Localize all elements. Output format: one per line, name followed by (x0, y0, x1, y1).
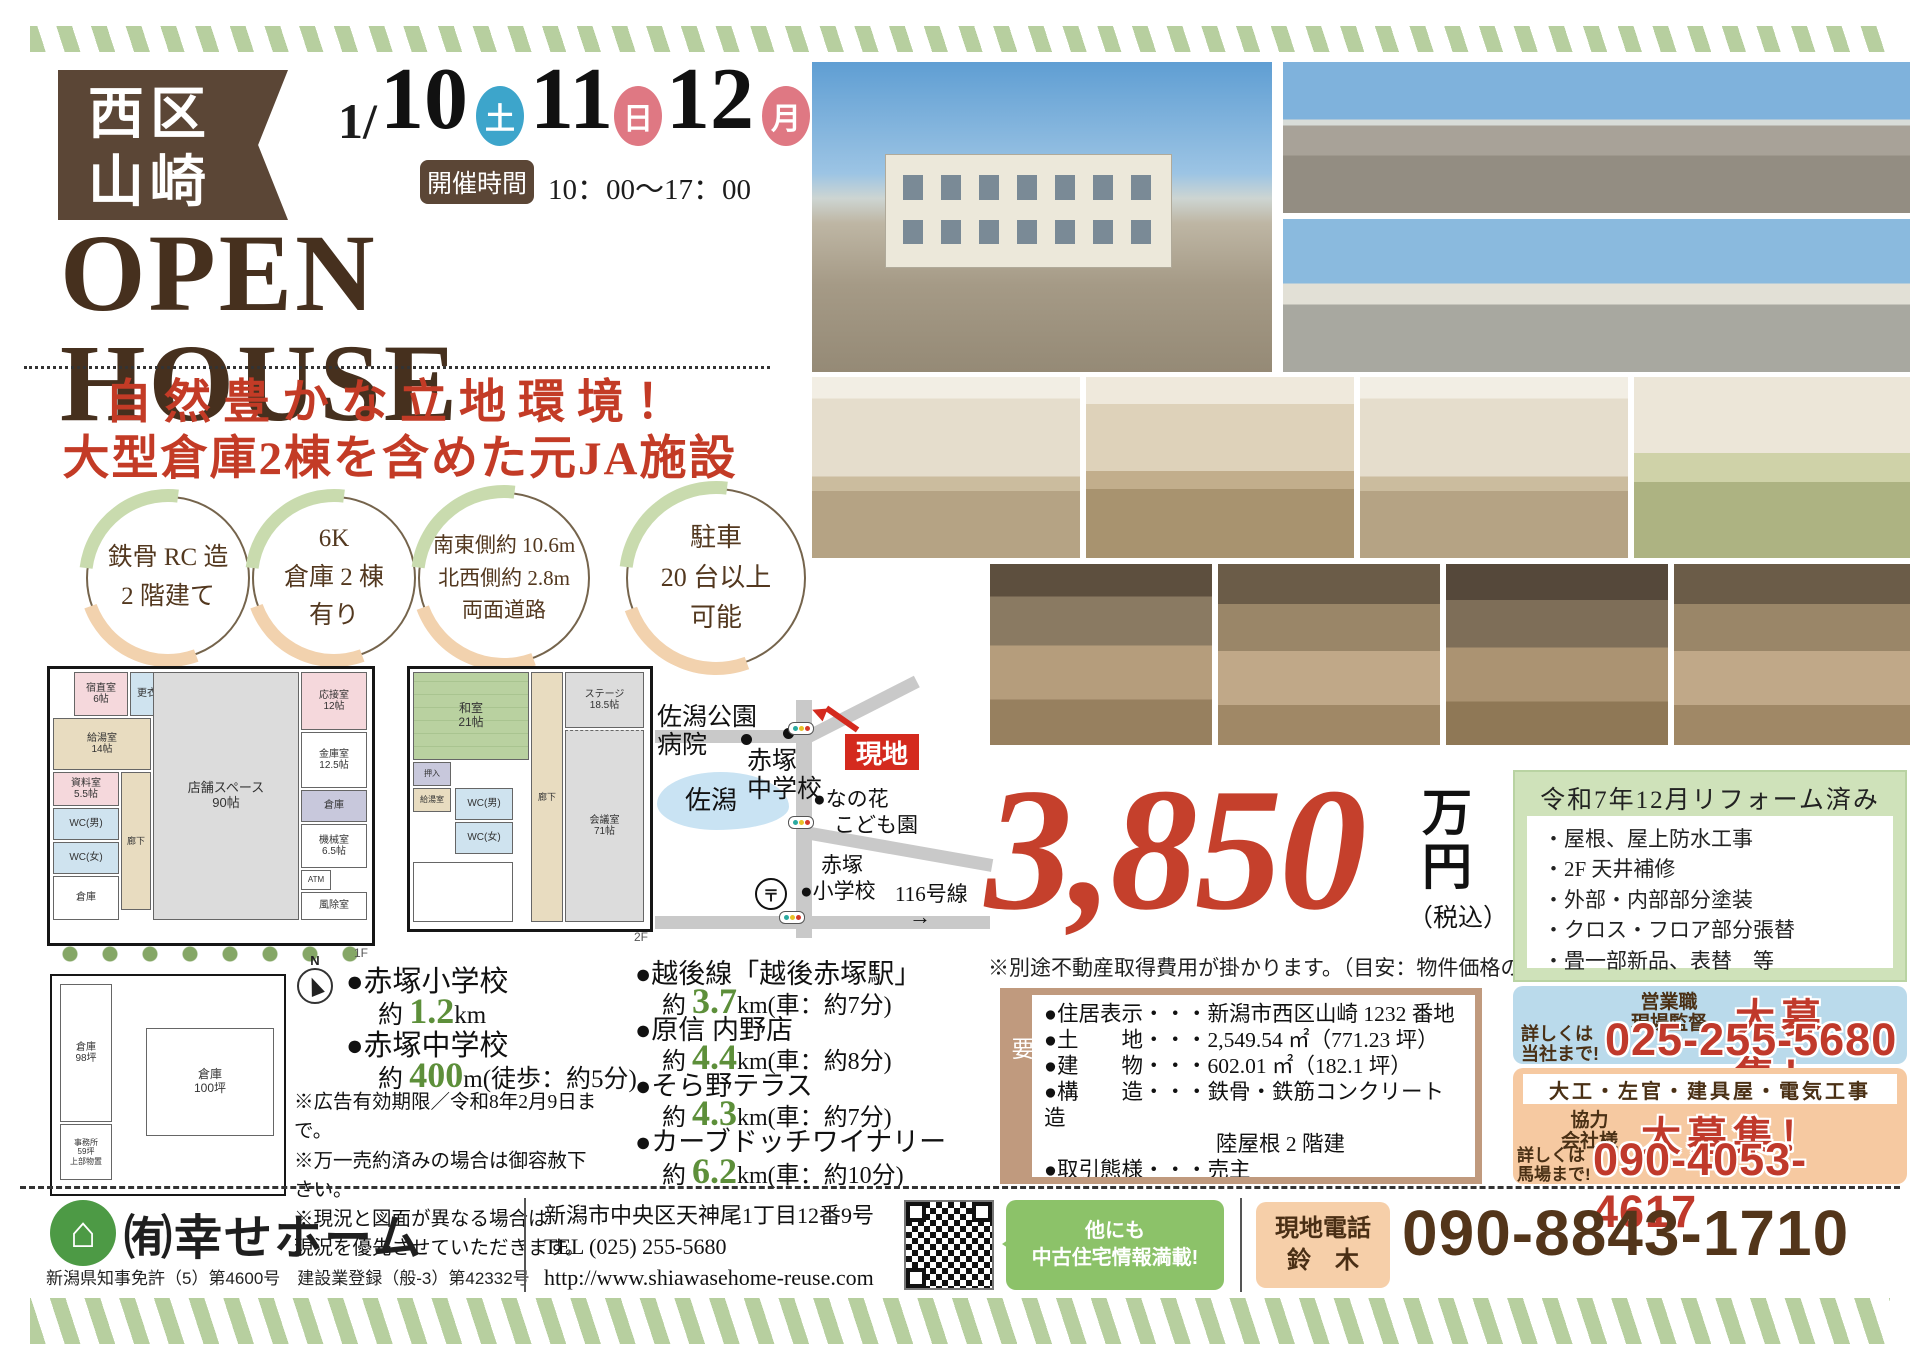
map-elementary-label: 赤塚 ●小学校 (800, 852, 876, 905)
feature-layout: 6K 倉庫 2 棟 有り (252, 496, 416, 660)
map-kindergarten-label: ●なの花 こども園 (813, 786, 918, 839)
recruit-partner-box: 大工・左官・建具屋・電気工事 協力 会社様 大募集！ 詳しくは 馬場まで! 09… (1513, 1068, 1907, 1184)
company-license: 新潟県知事免許（5）第4600号 建設業登録（般-3）第42332号 (46, 1264, 530, 1289)
room-kitchen-2f: 給湯室 (413, 788, 451, 812)
overview-row: ●土 地・・・2,549.54 ㎡（771.23 坪） (1044, 1027, 1463, 1053)
area-badge-line2: 山崎 (88, 150, 212, 213)
site-office: 事務所 59坪 上部物置 (60, 1124, 112, 1180)
room-kitchen: 給湯室 14帖 (53, 718, 151, 770)
date-month: 1/ (338, 92, 377, 150)
site-plan: 倉庫 98坪 倉庫 100坪 事務所 59坪 上部物置 (50, 974, 286, 1196)
title-divider (24, 366, 770, 369)
price-tax-label: （税込） (1408, 898, 1508, 934)
recruit-partner-trades: 大工・左官・建具屋・電気工事 (1523, 1074, 1897, 1104)
reform-item: ・クロス・フロア部分張替 (1543, 915, 1877, 945)
flyer-page: 西区 山崎 1/ 10 土 11 日 12 月 開催時間 10：00～17：00… (0, 0, 1920, 1356)
photo-warehouse-interior-2 (1218, 564, 1440, 745)
site-location-badge: 現地 (845, 734, 919, 770)
company-address: 新潟市中央区天神尾1丁目12番9号 (544, 1200, 874, 1231)
area-badge-line1: 西区 (88, 82, 212, 145)
room-wc-women-2f: WC(女) (455, 822, 513, 854)
reform-list: ・屋根、屋上防水工事 ・2F 天井補修 ・外部・内部部分塗装 ・クロス・フロア部… (1527, 816, 1893, 968)
room-wc-women: WC(女) (53, 842, 119, 874)
qr-code (906, 1202, 992, 1288)
company-name: ㈲幸せホーム (124, 1198, 423, 1268)
property-overview-rows: ●住居表示・・・新潟市西区山崎 1232 番地 ●土 地・・・2,549.54 … (1032, 995, 1475, 1177)
reform-item: ・外部・内部部分塗装 (1543, 885, 1877, 915)
compass-needle (305, 975, 325, 997)
qr-corner (906, 1268, 926, 1288)
room-atm: ATM (301, 870, 331, 890)
floorplan-1f: 宿直室 6帖 更衣室 給湯室 14帖 資料室 5.5帖 WC(男) WC(女) … (47, 666, 375, 946)
photo-warehouse-interior-1 (990, 564, 1212, 745)
reform-item: ・2F 天井補修 (1543, 854, 1877, 884)
traffic-light-icon (779, 911, 805, 924)
map-hospital-dot (741, 734, 752, 745)
map-hospital-label: 佐潟公園 病院 (657, 704, 757, 759)
company-url: http://www.shiawasehome-reuse.com (544, 1262, 874, 1293)
photo-warehouse-interior-4 (1674, 564, 1910, 745)
room-storage-left: 倉庫 (53, 876, 119, 920)
room-night-duty: 宿直室 6帖 (74, 672, 128, 716)
site-phone-number: 090-8843-1710 (1402, 1196, 1849, 1270)
note-line: ※万一売約済みの場合は御容赦下さい。 (294, 1147, 604, 1206)
property-overview-box: 物件概要 ●住居表示・・・新潟市西区山崎 1232 番地 ●土 地・・・2,54… (1000, 988, 1482, 1184)
photo-main-exterior (812, 62, 1272, 372)
room-vault: 金庫室 12.5帖 (301, 732, 367, 788)
reform-item: ・畳一部新品、表替 等 (1543, 946, 1877, 976)
overview-row: ●建 物・・・602.01 ㎡（182.1 坪） (1044, 1053, 1463, 1079)
photo-interior-tatami (1634, 377, 1910, 558)
site-phone-title: 現地電話 (1275, 1213, 1371, 1245)
map-road-bottom (655, 916, 990, 929)
price-unit-man: 万 (1422, 788, 1472, 838)
feature-parking: 駐車 20 台以上 可能 (626, 488, 806, 668)
site-phone-label: 現地電話 鈴 木 (1256, 1202, 1390, 1288)
room-corridor: 廊下 (121, 772, 151, 910)
price-unit-yen: 円 (1422, 842, 1472, 892)
site-warehouse-98: 倉庫 98坪 (60, 984, 112, 1122)
weekday-sat-badge: 土 (476, 86, 524, 146)
overview-row: 陸屋根 2 階建 (1044, 1131, 1463, 1157)
room-corridor-2f: 廊下 (531, 672, 563, 922)
post-office-icon: 〒 (755, 878, 787, 910)
photo-building-shape (886, 155, 1171, 267)
reform-box: 令和7年12月リフォーム済み ・屋根、屋上防水工事 ・2F 天井補修 ・外部・内… (1513, 770, 1907, 982)
photo-side-street (1283, 219, 1910, 372)
feature-road: 南東側約 10.6m 北西側約 2.8m 両面道路 (418, 492, 590, 664)
more-info-bubble: 他にも 中古住宅情報満載! (1006, 1200, 1224, 1290)
company-logo-icon: ⌂ (50, 1200, 116, 1266)
floorplan-2f: 和室 21帖 押入 給湯室 WC(男) WC(女) 廊下 ステージ 18.5帖 … (407, 666, 653, 932)
map-lake-label: 佐潟 (685, 780, 737, 817)
recruit-sales-contact: 詳しくは 当社まで! (1521, 1024, 1599, 1064)
room-meeting: 会議室 71帖 (565, 730, 644, 922)
photo-interior-office-1 (812, 377, 1080, 558)
top-stripe-band (30, 26, 1890, 52)
room-stairs-2f (413, 862, 513, 922)
price-amount: 3,850 (985, 762, 1364, 937)
overview-row: ●取引態様・・・売主 (1044, 1157, 1463, 1177)
feature-structure: 鉄骨 RC 造 2 階建て (86, 496, 250, 660)
site-phone-person: 鈴 木 (1287, 1245, 1359, 1277)
location-map: 佐潟 佐潟公園 病院 赤塚 中学校 現地 ●なの花 こども園 赤塚 ●小学校 〒… (655, 664, 990, 938)
compass-n-label: N (296, 954, 334, 967)
footer-divider (20, 1186, 1900, 1189)
floorplan-2f-label: 2F (634, 930, 648, 944)
weekday-sun-badge: 日 (614, 86, 662, 146)
headline-line2: 大型倉庫2棟を含めた元JA施設 (30, 436, 770, 483)
overview-row: ●構 造・・・鉄骨・鉄筋コンクリート造 (1044, 1079, 1463, 1131)
date-day-2: 11 (530, 56, 613, 144)
room-shop-space: 店舗スペース 90帖 (153, 672, 299, 920)
distance-value: 6.2 (692, 1151, 737, 1191)
recruit-partner-contact: 詳しくは 馬場まで! (1517, 1146, 1591, 1184)
map-route-label: 116号線 (895, 878, 968, 908)
company-address-block: 新潟市中央区天神尾1丁目12番9号 TEL (025) 255-5680 htt… (544, 1200, 874, 1294)
date-day-3: 12 (666, 56, 754, 144)
site-warehouse-100: 倉庫 100坪 (146, 1028, 274, 1136)
note-line: ※広告有効期限／令和8年2月9日まで。 (294, 1088, 604, 1147)
map-route-arrow-icon: → (909, 904, 931, 930)
bottom-stripe-band (30, 1298, 1890, 1344)
map-junior-high-label: 赤塚 中学校 (747, 748, 822, 803)
room-storage-right: 倉庫 (301, 790, 367, 822)
house-icon: ⌂ (70, 1208, 97, 1258)
footer-vertical-divider (1240, 1198, 1242, 1292)
area-badge: 西区 山崎 (58, 70, 288, 220)
traffic-light-icon (788, 816, 814, 829)
reform-item: ・屋根、屋上防水工事 (1543, 824, 1877, 854)
open-hours-time: 10：00～17：00 (548, 166, 751, 208)
qr-corner (906, 1202, 926, 1222)
room-wc-men: WC(男) (53, 808, 119, 840)
room-stage: ステージ 18.5帖 (565, 672, 644, 728)
compass-icon: N (296, 954, 334, 1004)
overview-row: ●住居表示・・・新潟市西区山崎 1232 番地 (1044, 1001, 1463, 1027)
photo-warehouse-interior-3 (1446, 564, 1668, 745)
photo-interior-office-2 (1086, 377, 1354, 558)
reform-title: 令和7年12月リフォーム済み (1515, 780, 1905, 816)
room-reception: 応接室 12帖 (301, 672, 367, 730)
qr-corner (972, 1202, 992, 1222)
weekday-mon-badge: 月 (762, 86, 810, 146)
recruit-sales-box: 営業職 現場監督 大募集！ 詳しくは 当社まで! 025-255-5680 (1513, 986, 1907, 1064)
footer-vertical-divider (524, 1198, 526, 1292)
headline-line1: 自然豊かな立地環境！ (30, 380, 770, 427)
date-day-1: 10 (380, 56, 468, 144)
room-wc-men-2f: WC(男) (455, 788, 513, 820)
traffic-light-icon (788, 722, 814, 735)
recruit-sales-phone: 025-255-5680 (1605, 1014, 1897, 1066)
photo-interior-office-3 (1360, 377, 1628, 558)
open-hours-label: 開催時間 (420, 160, 534, 204)
room-materials: 資料室 5.5帖 (53, 772, 119, 806)
company-tel: TEL (025) 255-5680 (544, 1231, 874, 1262)
room-windbreak: 風除室 (301, 892, 367, 920)
room-japanese: 和室 21帖 (413, 672, 529, 760)
photo-warehouse-exterior (1283, 62, 1910, 213)
room-machine: 機械室 6.5帖 (301, 824, 367, 868)
room-closet: 押入 (413, 762, 451, 786)
